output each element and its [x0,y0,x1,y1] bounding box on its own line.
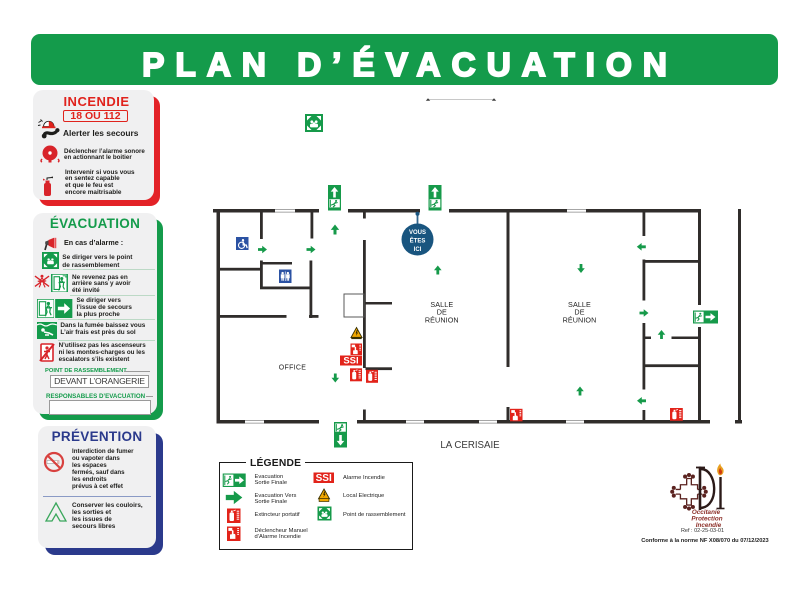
svg-text:SSI: SSI [343,356,358,367]
svg-text:RÉUNION: RÉUNION [425,315,459,324]
svg-text:RÉUNION: RÉUNION [563,315,597,324]
svg-text:ÊTES: ÊTES [410,237,426,245]
svg-text:SSI: SSI [316,473,332,484]
svg-text:ICI: ICI [414,247,422,253]
svg-text:VOUS: VOUS [409,230,426,236]
svg-text:OFFICE: OFFICE [279,365,306,372]
